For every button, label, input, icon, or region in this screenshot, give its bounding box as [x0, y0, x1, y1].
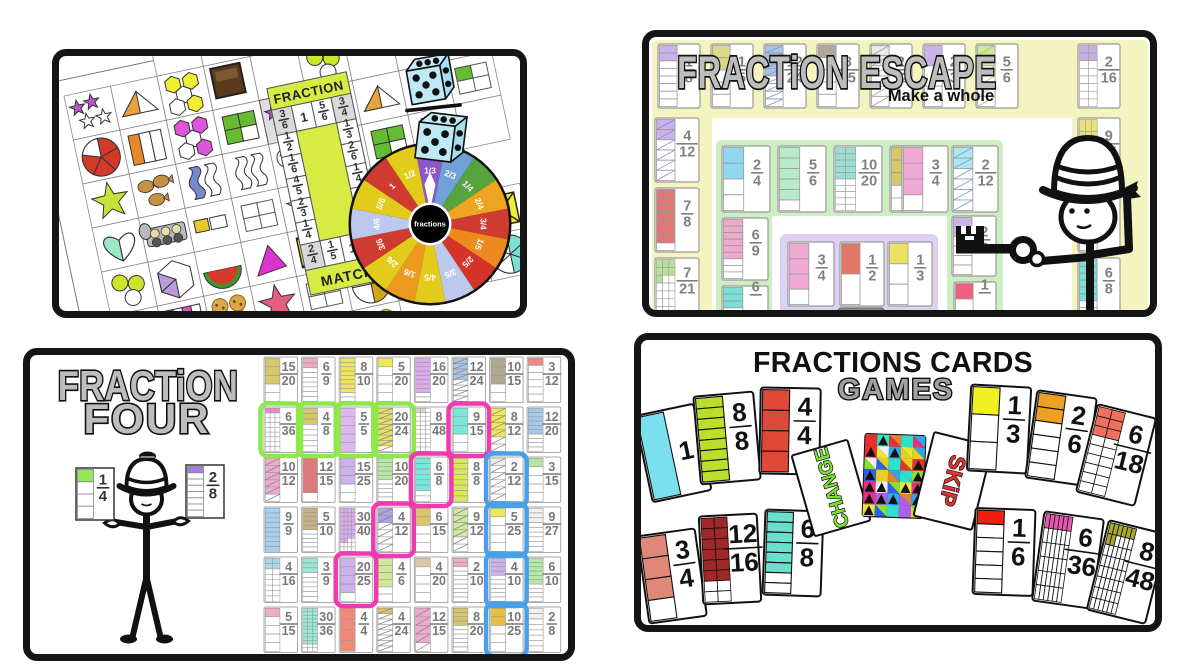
svg-text:6: 6 — [398, 574, 405, 588]
svg-text:5: 5 — [511, 510, 518, 524]
svg-text:4: 4 — [360, 610, 367, 624]
svg-text:4: 4 — [753, 173, 761, 189]
svg-text:4: 4 — [360, 624, 367, 638]
svg-text:9: 9 — [752, 243, 760, 259]
svg-text:3: 3 — [1005, 418, 1021, 449]
svg-text:9: 9 — [548, 510, 555, 524]
svg-text:9: 9 — [473, 510, 480, 524]
svg-text:20: 20 — [394, 410, 408, 424]
svg-text:20: 20 — [470, 624, 484, 638]
svg-text:21: 21 — [679, 281, 695, 297]
svg-text:12: 12 — [507, 474, 521, 488]
svg-text:8: 8 — [436, 410, 443, 424]
svg-text:6: 6 — [1011, 541, 1027, 571]
svg-text:2: 2 — [1105, 54, 1113, 70]
svg-text:20: 20 — [394, 374, 408, 388]
svg-text:5: 5 — [360, 424, 367, 438]
svg-text:24: 24 — [394, 624, 408, 638]
svg-text:20: 20 — [357, 560, 371, 574]
svg-text:6: 6 — [1105, 265, 1113, 281]
svg-text:2: 2 — [982, 157, 990, 173]
svg-text:7: 7 — [683, 198, 691, 214]
svg-text:10: 10 — [507, 610, 521, 624]
svg-text:10: 10 — [282, 460, 296, 474]
svg-text:12: 12 — [679, 144, 695, 160]
svg-text:5: 5 — [1003, 54, 1011, 70]
svg-text:8: 8 — [511, 410, 518, 424]
svg-text:10: 10 — [507, 574, 521, 588]
svg-text:30: 30 — [319, 610, 333, 624]
svg-text:15: 15 — [357, 460, 371, 474]
svg-text:9: 9 — [323, 374, 330, 388]
svg-text:20: 20 — [432, 574, 446, 588]
svg-text:6: 6 — [436, 510, 443, 524]
svg-text:1: 1 — [1007, 390, 1023, 421]
svg-text:8: 8 — [683, 214, 691, 230]
svg-text:5: 5 — [398, 360, 405, 374]
svg-text:36: 36 — [1065, 549, 1098, 583]
svg-text:20: 20 — [394, 474, 408, 488]
svg-text:4: 4 — [683, 128, 691, 144]
svg-text:4: 4 — [398, 610, 405, 624]
svg-text:2: 2 — [511, 460, 518, 474]
svg-text:20: 20 — [861, 173, 877, 189]
svg-text:3/4: 3/4 — [479, 218, 489, 230]
svg-text:24: 24 — [394, 424, 408, 438]
svg-text:12: 12 — [432, 610, 446, 624]
svg-text:5: 5 — [323, 510, 330, 524]
svg-text:8: 8 — [1105, 281, 1113, 297]
svg-text:25: 25 — [357, 574, 371, 588]
svg-text:8: 8 — [473, 474, 480, 488]
svg-text:10: 10 — [507, 360, 521, 374]
svg-text:9: 9 — [285, 524, 292, 538]
svg-text:3: 3 — [323, 560, 330, 574]
svg-text:Make a whole: Make a whole — [888, 87, 994, 105]
svg-text:12: 12 — [507, 424, 521, 438]
svg-text:10: 10 — [545, 574, 559, 588]
svg-text:GAMES: GAMES — [838, 374, 954, 406]
svg-text:8: 8 — [436, 474, 443, 488]
svg-text:6: 6 — [1003, 70, 1011, 86]
svg-text:5: 5 — [809, 157, 817, 173]
svg-text:24: 24 — [470, 374, 484, 388]
svg-text:8: 8 — [323, 424, 330, 438]
svg-text:6: 6 — [285, 410, 292, 424]
svg-text:1: 1 — [868, 252, 876, 268]
svg-text:25: 25 — [507, 624, 521, 638]
svg-text:4: 4 — [818, 268, 826, 284]
svg-text:4: 4 — [436, 560, 443, 574]
svg-text:9: 9 — [473, 410, 480, 424]
svg-text:9: 9 — [285, 510, 292, 524]
svg-text:4: 4 — [323, 410, 330, 424]
svg-text:16: 16 — [1101, 70, 1117, 86]
svg-text:10: 10 — [319, 524, 333, 538]
svg-text:4: 4 — [797, 420, 813, 450]
svg-text:25: 25 — [507, 524, 521, 538]
svg-text:fractions: fractions — [414, 220, 446, 229]
svg-text:12: 12 — [470, 360, 484, 374]
svg-text:3: 3 — [818, 252, 826, 268]
svg-text:3: 3 — [548, 460, 555, 474]
svg-text:15: 15 — [470, 424, 484, 438]
svg-text:15: 15 — [282, 624, 296, 638]
svg-text:FOUR: FOUR — [84, 395, 211, 442]
svg-text:12: 12 — [319, 460, 333, 474]
svg-text:2: 2 — [753, 157, 761, 173]
svg-text:8: 8 — [733, 425, 750, 456]
svg-text:10: 10 — [470, 574, 484, 588]
svg-text:2: 2 — [473, 560, 480, 574]
svg-text:6: 6 — [752, 227, 760, 243]
svg-text:15: 15 — [545, 474, 559, 488]
svg-text:15: 15 — [432, 624, 446, 638]
svg-text:6: 6 — [436, 460, 443, 474]
svg-text:4: 4 — [398, 510, 405, 524]
svg-text:12: 12 — [545, 410, 559, 424]
svg-text:20: 20 — [545, 424, 559, 438]
svg-text:5: 5 — [285, 610, 292, 624]
svg-text:27: 27 — [545, 524, 559, 538]
svg-text:4: 4 — [932, 173, 940, 189]
svg-text:8: 8 — [473, 610, 480, 624]
svg-text:9: 9 — [323, 574, 330, 588]
svg-text:20: 20 — [432, 374, 446, 388]
svg-text:4: 4 — [398, 560, 405, 574]
svg-text:30: 30 — [357, 510, 371, 524]
svg-text:1: 1 — [1012, 513, 1028, 543]
svg-text:12: 12 — [728, 518, 758, 549]
svg-text:8: 8 — [548, 624, 555, 638]
svg-text:12: 12 — [978, 173, 994, 189]
svg-text:1: 1 — [981, 277, 989, 293]
svg-text:8: 8 — [731, 397, 748, 428]
svg-text:16: 16 — [729, 546, 759, 577]
svg-text:6: 6 — [809, 173, 817, 189]
svg-text:6: 6 — [323, 360, 330, 374]
svg-text:10: 10 — [394, 460, 408, 474]
svg-text:4: 4 — [99, 488, 108, 505]
svg-text:15: 15 — [432, 524, 446, 538]
svg-text:8: 8 — [209, 485, 217, 502]
svg-text:3: 3 — [548, 360, 555, 374]
svg-text:15: 15 — [507, 374, 521, 388]
svg-text:2: 2 — [868, 268, 876, 284]
svg-text:6: 6 — [548, 560, 555, 574]
svg-text:2: 2 — [548, 610, 555, 624]
svg-text:12: 12 — [394, 524, 408, 538]
svg-text:36: 36 — [282, 424, 296, 438]
svg-text:10: 10 — [861, 157, 877, 173]
svg-text:8: 8 — [360, 360, 367, 374]
svg-text:4/6: 4/6 — [371, 218, 381, 230]
svg-text:5: 5 — [360, 410, 367, 424]
svg-text:12: 12 — [470, 524, 484, 538]
svg-text:36: 36 — [319, 624, 333, 638]
svg-text:6: 6 — [752, 279, 760, 295]
svg-text:7: 7 — [683, 265, 691, 281]
svg-text:10: 10 — [357, 374, 371, 388]
svg-text:12: 12 — [545, 374, 559, 388]
svg-text:20: 20 — [282, 374, 296, 388]
svg-text:3: 3 — [916, 268, 924, 284]
svg-text:48: 48 — [432, 424, 446, 438]
svg-text:12: 12 — [282, 474, 296, 488]
svg-text:8: 8 — [799, 542, 815, 572]
svg-text:4/5: 4/5 — [424, 273, 436, 283]
svg-text:1: 1 — [916, 252, 924, 268]
svg-text:4: 4 — [285, 560, 292, 574]
svg-text:16: 16 — [282, 574, 296, 588]
svg-text:16: 16 — [432, 360, 446, 374]
svg-text:4: 4 — [797, 391, 813, 421]
svg-text:25: 25 — [357, 474, 371, 488]
svg-text:2: 2 — [209, 469, 217, 486]
svg-text:15: 15 — [282, 360, 296, 374]
svg-text:4: 4 — [511, 560, 518, 574]
svg-text:15: 15 — [319, 474, 333, 488]
svg-text:3: 3 — [932, 157, 940, 173]
svg-text:1: 1 — [99, 471, 107, 488]
svg-text:8: 8 — [473, 460, 480, 474]
svg-text:40: 40 — [357, 524, 371, 538]
